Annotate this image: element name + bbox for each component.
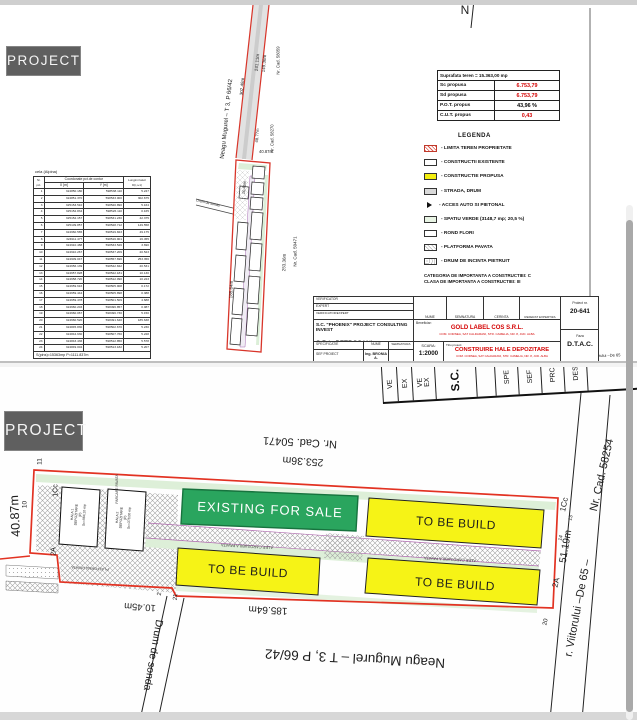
project-watermark: PROJECT — [6, 46, 81, 76]
company-cell: S.C. "PHOENIX" PROJECT CONSULTING INVEST… — [314, 320, 414, 342]
semnatura-header: SEMNATURA — [447, 297, 484, 320]
site-plan-sheet: Neagu Mugurel – T 3, P 66/42 302.48m 241… — [0, 0, 637, 362]
semnatura2-header: SEMNATURA — [389, 342, 414, 350]
title-block: VERIFICATOR EXPERT VERIFICATOR/EXPERT NU… — [313, 296, 599, 362]
legend-item: - LIMITA TEREN PROPRIETATE — [424, 146, 600, 152]
coordinate-table-footer: S(pins)=15363mp P=1111.837m — [33, 352, 151, 359]
limit-swatch — [424, 145, 437, 152]
gravel-swatch — [424, 258, 437, 265]
green-space-swatch — [424, 216, 437, 223]
scrollbar-thumb[interactable] — [626, 220, 633, 712]
legend-item: - STRADA, DRUM — [424, 188, 600, 194]
development-plan-drawing — [0, 363, 637, 720]
dim-label: 40.87m — [246, 149, 286, 154]
cadastre-label: Nr. Cad. 50471 — [293, 229, 298, 275]
project-number-cell: Proiect nr. 20-641 — [561, 297, 599, 330]
vertex-label: 10 — [22, 498, 29, 512]
coordinate-rows: 1324850.180598538.1105.2472324851.370598… — [34, 189, 151, 352]
col-header-nr: Nr. pct. — [34, 177, 45, 189]
phase-cell: Faza D.T.A.C. — [561, 330, 599, 362]
col-header-len: Lungimi laturi D(i,i+1) — [124, 177, 151, 189]
cadastre-label: Nr. Cad. 58270 — [270, 116, 275, 162]
cut-label: C.U.T. propus — [438, 111, 495, 120]
vertex-label: 11 — [37, 455, 44, 469]
coordinate-table-title: cela (Alpina) — [35, 169, 57, 174]
legend-item: - ROND FLORI — [424, 231, 600, 237]
paved-swatch — [424, 244, 437, 251]
verif-expert-row: VERIFICATOR/EXPERT — [314, 311, 414, 320]
referat-header: REFERAT EXPERTIZA NR./DATA — [520, 297, 561, 320]
importance-class: CLASA DE IMPORTANTA A CONSTRUCTIEI: III — [424, 279, 600, 284]
project-watermark: PROJECT — [4, 411, 83, 451]
legend-item: - CONSTRUCTIE PROPUSA — [424, 174, 600, 180]
legend-item: - PLATFORMA PAVATA — [424, 245, 600, 251]
legend: LEGENDA - LIMITA TEREN PROPRIETATE - CON… — [424, 133, 600, 284]
pot-label: P.O.T. propus — [438, 101, 495, 110]
vertex-label: 21 — [172, 590, 179, 604]
hall-1-label: HALA 1DEPOZITARE (P)Sc=984,10 mp — [70, 484, 89, 545]
vertex-label: 1Cc — [53, 481, 60, 501]
nume2-header: NUME — [364, 342, 389, 350]
legend-item: - SPATIU VERDE (3148,7 mp; 20,5 %) — [424, 216, 600, 222]
cerinta-header: CERINTA — [484, 297, 520, 320]
area-stats-box: Suprafata teren = 15.363,00 mp Sc propus… — [437, 70, 560, 121]
expert-row: EXPERT — [314, 304, 414, 311]
legend-item: - ACCES AUTO SI PIETONAL — [424, 202, 600, 208]
access-arrow-icon — [427, 202, 432, 208]
sc-value: 6.753,79 — [495, 81, 559, 90]
cadastre-label: Nr. Cad. 58059 — [276, 38, 281, 84]
legend-title: LEGENDA — [458, 133, 600, 139]
coordinate-table: cela (Alpina) Nr. pct. Coordonate pct.de… — [33, 176, 151, 359]
sc-label: Sc propusa — [438, 81, 495, 90]
cut-value: 0,43 — [495, 111, 559, 120]
importance-category: CATEGORIA DE IMPORTANTA A CONSTRUCTIEI: … — [424, 273, 600, 278]
pot-value: 43,96 % — [495, 101, 559, 110]
parking-label: PARCARE PAVATA — [115, 464, 119, 514]
specificatie-header: SPECIFICATIE — [314, 342, 364, 350]
sd-value: 6.753,79 — [495, 91, 559, 100]
bottom-edge — [0, 712, 637, 720]
total-area: Suprafata teren = 15.363,00 mp — [438, 71, 510, 80]
top-edge — [0, 0, 637, 5]
legend-item: - DRUM DE INCINTA PIETRUIT — [424, 259, 600, 265]
road-swatch — [424, 188, 437, 195]
flower-swatch — [424, 230, 437, 237]
sd-label: Sd propusa — [438, 91, 495, 100]
scale-cell: SCARA: 1:2000 — [414, 342, 444, 362]
vertex-label: 2 — [156, 587, 163, 601]
verificator-row: VERIFICATOR — [314, 297, 414, 304]
listing-image-viewer: Neagu Mugurel – T 3, P 66/42 302.48m 241… — [0, 0, 637, 720]
project-title-cell: Titlu proiect: CONSTRUIRE HALE DEPOZITAR… — [444, 342, 561, 362]
proposed-swatch — [424, 173, 437, 180]
existing-swatch — [424, 159, 437, 166]
north-label: N — [458, 3, 472, 17]
nume-header: NUME — [414, 297, 447, 320]
vertex-label: 2A — [51, 544, 58, 560]
legend-item: - CONSTRUCTII EXISTENTE — [424, 160, 600, 166]
beneficiary-cell: Beneficiar: GOLD LABEL COS S.R.L. COM. C… — [414, 320, 561, 342]
panel-divider-light — [0, 363, 637, 367]
development-plan: VE EX VEEX S.C. SPE SEF PRC DES — [0, 363, 637, 720]
